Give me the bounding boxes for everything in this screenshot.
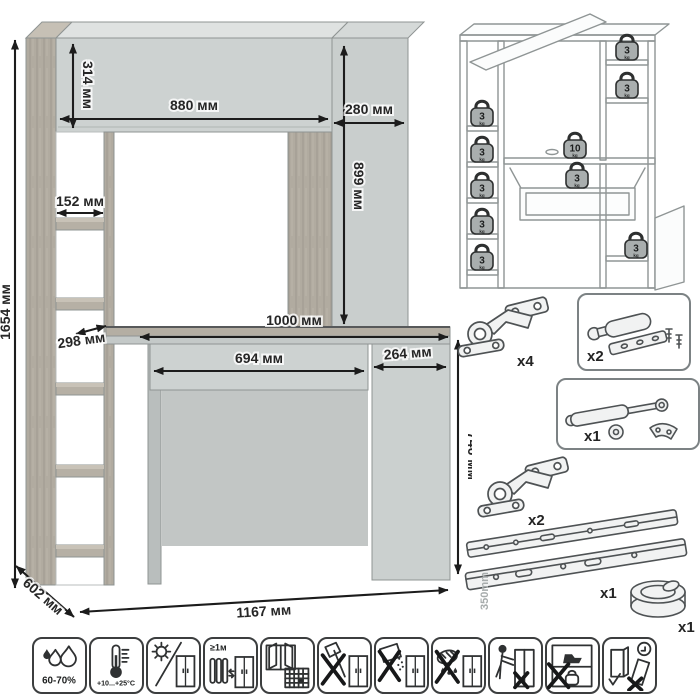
care-icon-heat-distance: ≥1м <box>203 637 258 694</box>
svg-text:kg: kg <box>479 121 485 126</box>
weight-badge: 10 kg <box>564 133 586 158</box>
gas-lift-icon: x1 <box>558 380 694 444</box>
screws-icon <box>666 329 682 348</box>
care-icon-no-overload <box>545 637 600 694</box>
svg-text:kg: kg <box>624 55 630 60</box>
wardrobe-glyph <box>177 656 195 686</box>
damper-icon: x2 <box>579 295 685 365</box>
care-icon-carry-upright <box>602 637 657 694</box>
dim-door-width: 264 мм <box>383 343 432 362</box>
hinge-icon <box>457 296 549 357</box>
care-icon-no-abrasives <box>374 637 429 694</box>
svg-text:kg: kg <box>479 229 485 234</box>
wardrobe-glyph <box>406 656 424 686</box>
slide-length-label: 350mm <box>479 572 491 610</box>
dim-top-right-width: 280 мм <box>345 101 393 117</box>
svg-text:kg: kg <box>479 157 485 162</box>
weight-badge: 3 kg <box>471 137 493 162</box>
svg-text:kg: kg <box>624 93 630 98</box>
svg-text:+10...+25°C: +10...+25°C <box>97 680 135 688</box>
wardrobe-glyph <box>349 656 367 686</box>
qty-label: x1 <box>584 428 601 444</box>
svg-text:kg: kg <box>479 265 485 270</box>
weight-badge: 3 kg <box>471 101 493 126</box>
care-icon-no-direct-sunlight <box>146 637 201 694</box>
svg-text:kg: kg <box>633 253 639 258</box>
weight-badge: 3 kg <box>471 209 493 234</box>
dim-top-section-height: 314 мм <box>80 61 96 109</box>
wardrobe-glyph <box>463 656 481 686</box>
load-capacity-diagram: 3 kg 3 kg 3 kg 3 kg 3 kg 3 kg 3 kg 10 <box>440 0 700 300</box>
weight-badge: 3 kg <box>625 233 647 258</box>
dim-total-width: 1167 мм <box>236 601 292 620</box>
care-icon-temperature: +10...+25°C <box>89 637 144 694</box>
furniture-spec-sheet: 1654 мм 314 мм 880 мм 280 мм 899 мм 152 … <box>0 0 700 700</box>
wardrobe-glyph <box>235 657 253 687</box>
weight-badge: 3 kg <box>566 163 588 188</box>
svg-text:60-70%: 60-70% <box>42 676 76 687</box>
weight-badge: 3 kg <box>616 35 638 60</box>
care-icons-row: 60-70% +10...+25°C <box>32 637 657 694</box>
care-icon-no-dragging <box>488 637 543 694</box>
main-dimension-drawing: 1654 мм 314 мм 880 мм 280 мм 899 мм 152 … <box>0 0 472 640</box>
dim-shelf-width: 152 мм <box>56 193 104 209</box>
hardware-cable-grommet: x1 <box>616 566 700 636</box>
svg-text:≥1м: ≥1м <box>210 643 226 653</box>
weight-badge: 3 kg <box>471 173 493 198</box>
dim-top-left-width: 880 мм <box>170 97 218 113</box>
svg-text:kg: kg <box>574 183 580 188</box>
svg-text:kg: kg <box>572 153 578 158</box>
care-icon-no-impact <box>317 637 372 694</box>
hardware-damper-box: x2 <box>577 293 691 371</box>
svg-text:kg: kg <box>479 193 485 198</box>
hardware-gas-lift-box: x1 <box>556 378 700 450</box>
care-icon-ventilation: 21 <box>260 637 315 694</box>
weight-badge: 3 kg <box>471 245 493 270</box>
dim-drawer-width: 694 мм <box>235 350 283 366</box>
dim-desktop-width: 1000 мм <box>266 312 322 328</box>
qty-label: x2 <box>587 348 604 365</box>
care-icon-no-wet-cleaning <box>431 637 486 694</box>
qty-label: x4 <box>517 353 534 370</box>
qty-label: x1 <box>600 585 617 602</box>
qty-label: x1 <box>678 619 695 636</box>
dim-total-height: 1654 мм <box>0 284 13 340</box>
care-icon-humidity: 60-70% <box>32 637 87 694</box>
hardware-hinge-top: x4 <box>448 290 568 376</box>
dim-right-cabinet-height: 899 мм <box>351 162 367 210</box>
weight-badge: 3 kg <box>616 73 638 98</box>
svg-text:21: 21 <box>299 679 304 684</box>
